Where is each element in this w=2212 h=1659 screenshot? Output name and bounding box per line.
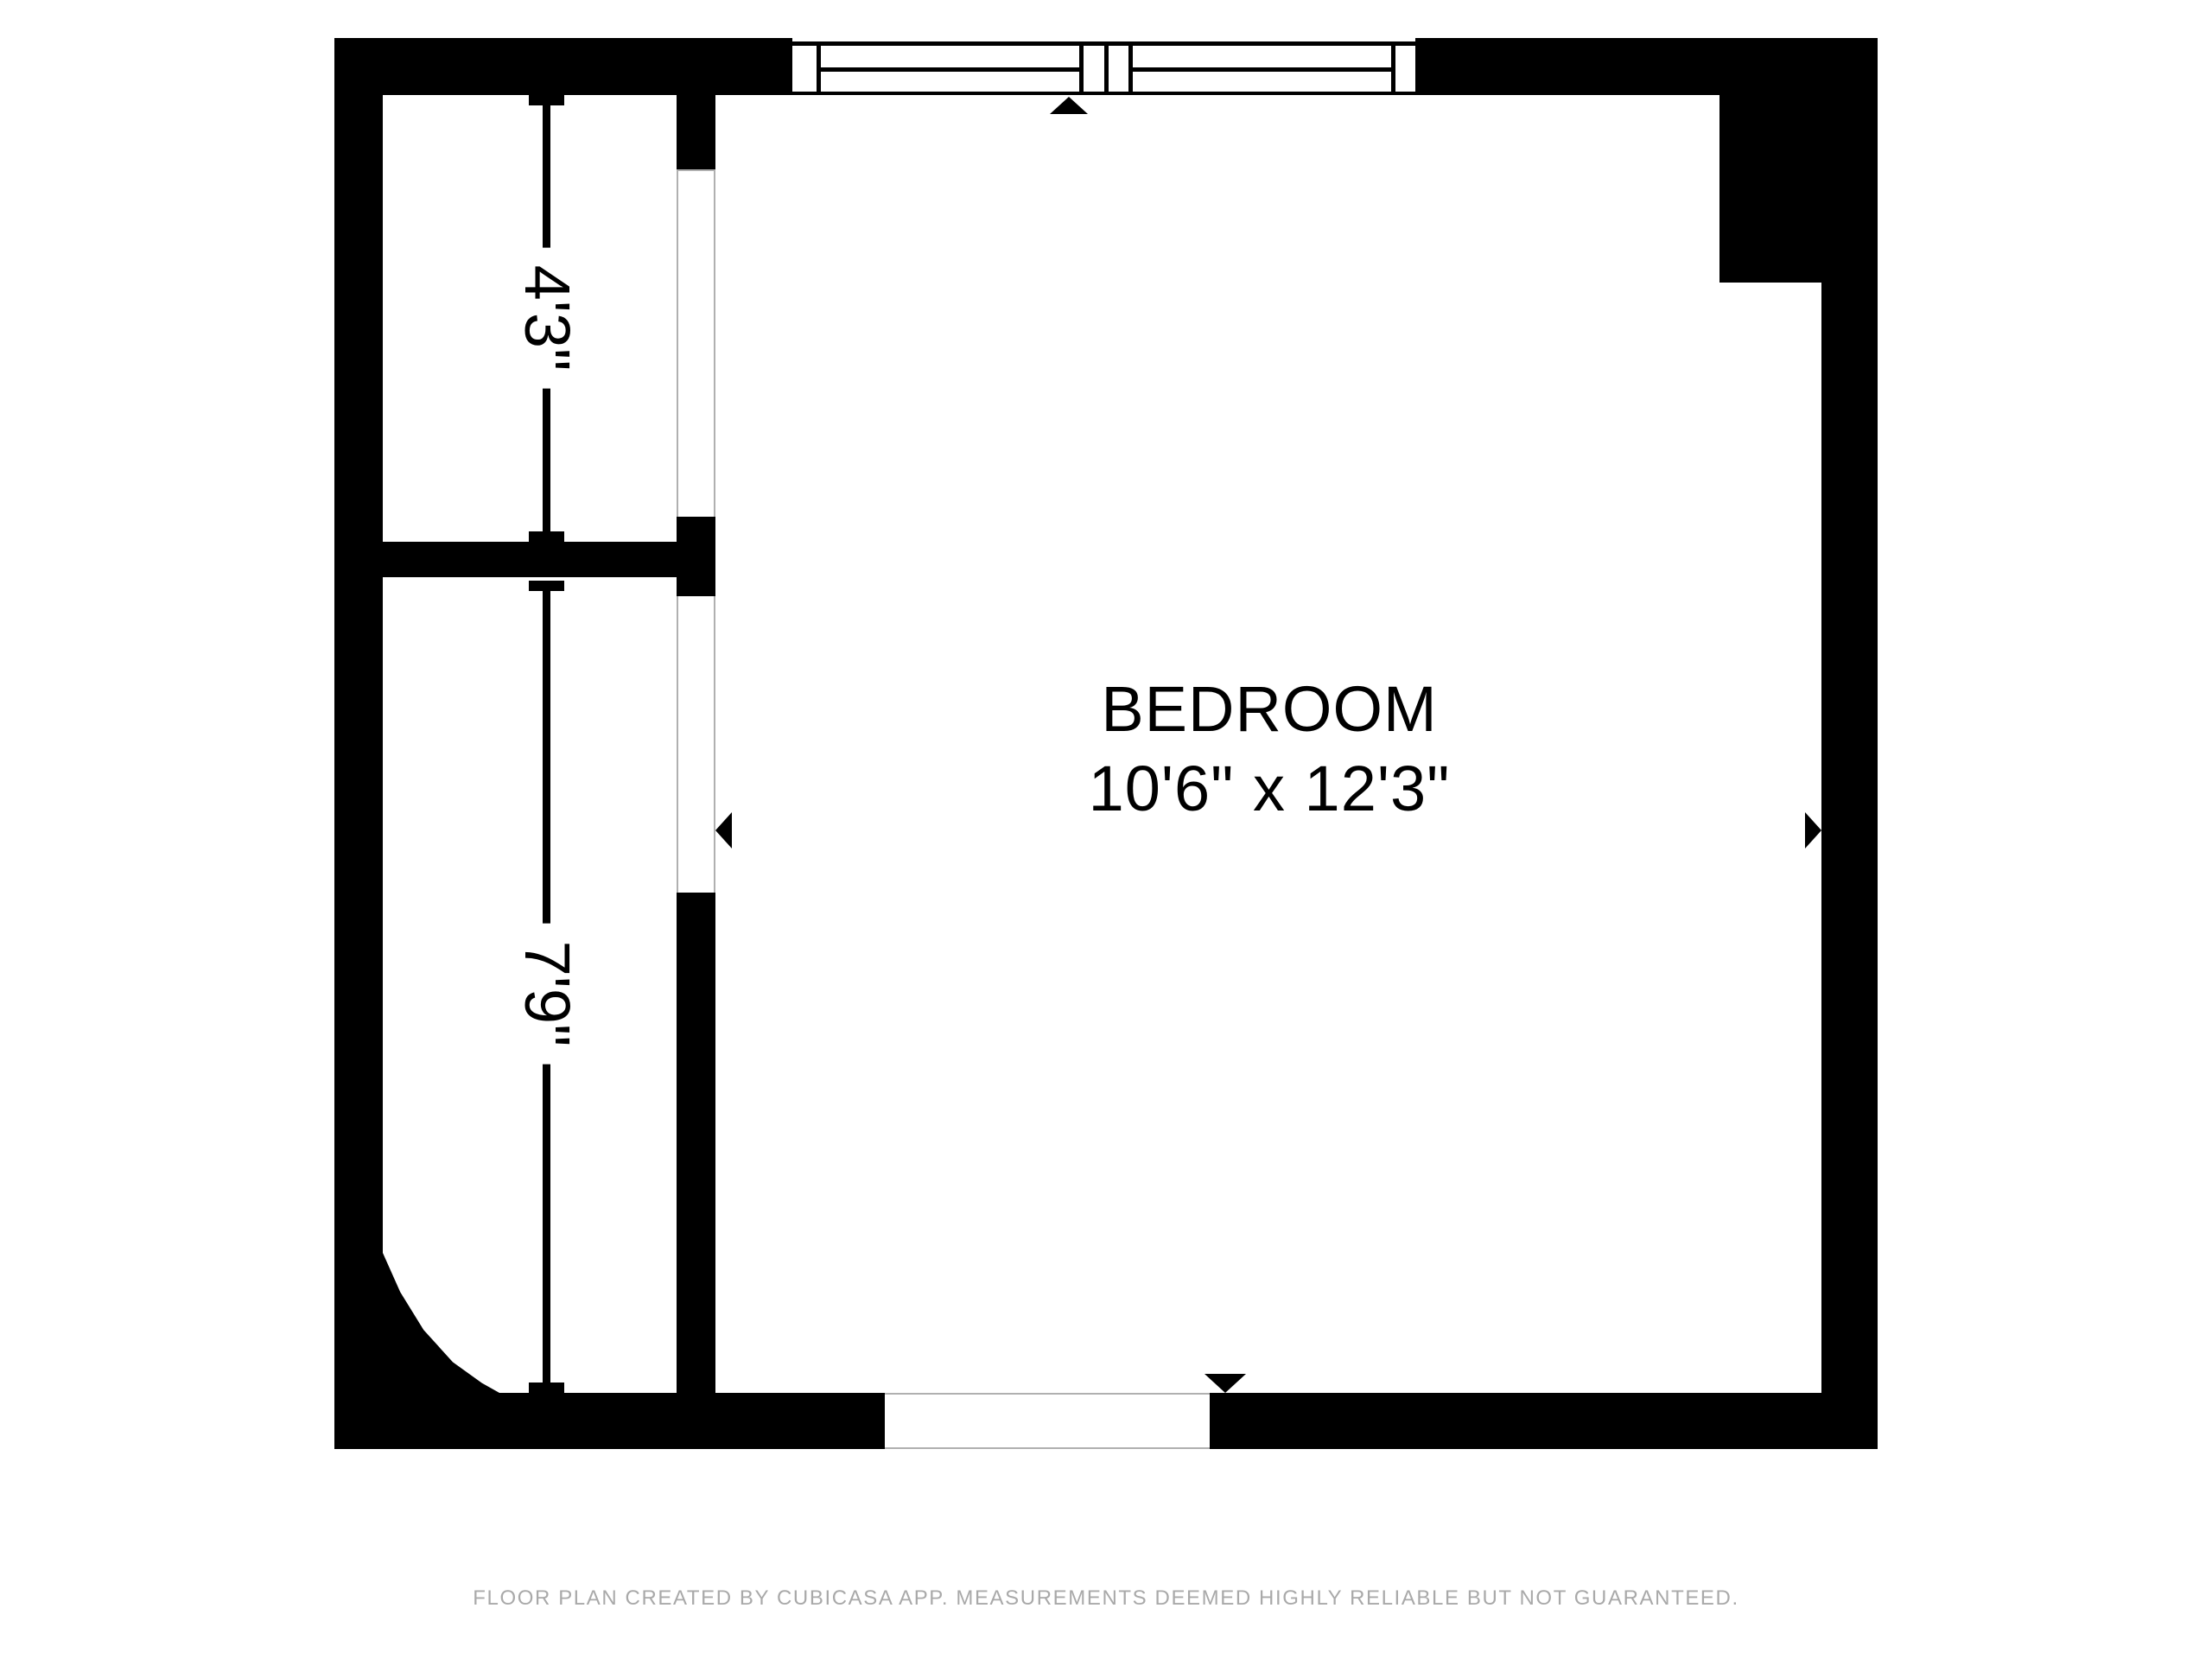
window-frame-slot [792, 46, 817, 92]
window-mullion-slot [1109, 46, 1128, 92]
window-direction-arrow-icon [1050, 97, 1088, 114]
window-glass-line [1133, 67, 1391, 72]
dimension-tick [529, 95, 564, 105]
wall-right [1821, 38, 1878, 1449]
dimension-label-lower-closet: 7'9" [510, 924, 584, 1065]
room-name: BEDROOM [717, 670, 1821, 749]
window-glass-line [821, 67, 1079, 72]
window-pane-left [821, 46, 1079, 92]
wall-top-right-segment [1415, 38, 1719, 95]
exterior-door-opening [885, 1393, 1210, 1449]
dimension-tick [529, 1382, 564, 1393]
window-frame-slot [1395, 46, 1415, 92]
window [792, 41, 1415, 95]
dimension-tick [529, 531, 564, 542]
exterior-door-arrow-icon [1205, 1374, 1246, 1393]
window-pane-right [1133, 46, 1391, 92]
room-label-block: BEDROOM 10'6" x 12'3" [717, 670, 1821, 829]
dimension-tick [529, 581, 564, 591]
floor-plan: 4'3" 7'9" BEDROOM 10'6" x 12'3" [0, 0, 2212, 1659]
window-mullion-slot [1084, 46, 1104, 92]
closet-wall-segment-bottom [677, 893, 715, 1393]
wall-bottom-left-segment [334, 1393, 885, 1449]
closet-wall-segment-top [677, 95, 715, 169]
closet-divider-wall [383, 542, 683, 577]
wall-top-left-segment [334, 38, 792, 95]
wall-left [334, 38, 383, 1449]
closet-wall-segment-mid [677, 517, 715, 596]
wall-bottom-right-segment [1210, 1393, 1878, 1449]
rounded-corner-fill [383, 1253, 499, 1393]
dimension-label-upper-closet: 4'3" [510, 248, 584, 389]
footer-disclaimer: FLOOR PLAN CREATED BY CUBICASA APP. MEAS… [0, 1586, 2212, 1611]
room-size: 10'6" x 12'3" [717, 749, 1821, 829]
